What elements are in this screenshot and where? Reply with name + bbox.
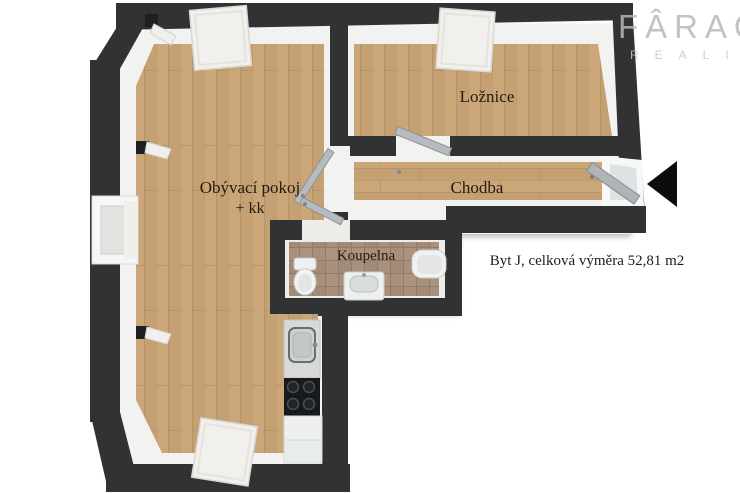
entrance-arrow-icon (647, 161, 677, 207)
fridge (284, 416, 322, 440)
faucet-icon (313, 343, 318, 348)
skylight-window-bedroom (436, 8, 495, 72)
side-window (92, 196, 138, 264)
floor-plan-image: Obývací pokoj + kk Ložnice Chodba Koupel… (0, 0, 740, 493)
kitchen-block (284, 320, 322, 463)
room-label-bedroom: Ložnice (427, 86, 547, 107)
washbasin (344, 272, 384, 300)
skylight-window-living-bottom (192, 418, 258, 486)
cabinet (284, 440, 322, 463)
room-label-living: Obývací pokoj + kk (150, 177, 350, 219)
skylight-window-living (189, 6, 251, 71)
living-room-label: Obývací pokoj (150, 177, 350, 198)
living-room-sublabel: + kk (150, 199, 350, 219)
apartment-area-label: Byt J, celková výměra 52,81 m2 (472, 253, 702, 270)
room-label-bathroom: Koupelna (306, 247, 426, 266)
room-label-hallway: Chodba (417, 177, 537, 198)
